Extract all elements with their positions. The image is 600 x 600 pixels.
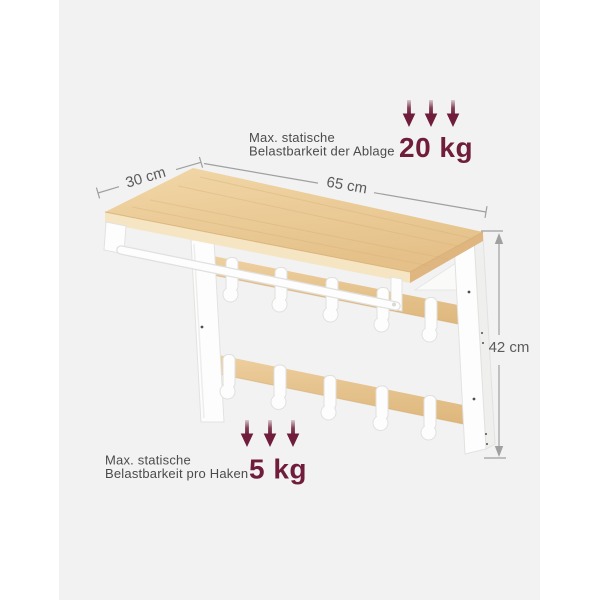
shelf-load-label-line2: Belastbarkeit der Ablage (249, 144, 395, 159)
height-label: 42 cm (489, 339, 530, 356)
hook-load-value: 5 kg (249, 454, 307, 485)
rail-end-cap (392, 303, 396, 307)
hook-load-label-line2: Belastbarkeit pro Haken (105, 466, 248, 481)
shelf-load-value: 20 kg (399, 132, 473, 163)
product-diagram: 30 cm 65 cm 42 cm Max. statische Belastb… (0, 0, 600, 600)
